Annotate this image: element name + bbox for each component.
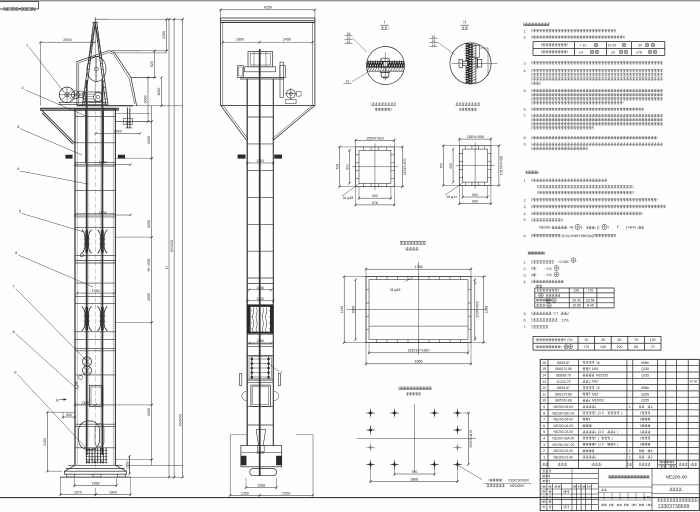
svg-text:10: 10 — [584, 338, 588, 342]
svg-text:: 0.6: : 0.6 — [545, 273, 552, 277]
svg-text:9.: 9. — [523, 143, 526, 147]
svg-text:2300: 2300 — [162, 31, 166, 39]
svg-text:45: 45 — [474, 281, 478, 285]
svg-text:724: 724 — [336, 164, 340, 170]
svg-text:18-φ18: 18-φ18 — [343, 196, 354, 200]
svg-text:6.: 6. — [523, 234, 526, 238]
svg-text:H+-3000: H+-3000 — [147, 258, 151, 271]
svg-text:1: 1 — [629, 455, 631, 459]
svg-text:NE200-03D-00: NE200-03D-00 — [552, 411, 574, 415]
svg-text:170: 170 — [583, 345, 589, 349]
svg-text:392X3=1176: 392X3=1176 — [469, 430, 473, 448]
svg-text:M16X55: M16X55 — [596, 373, 608, 377]
svg-text:45: 45 — [474, 336, 478, 340]
svg-text:10: 10 — [542, 399, 546, 403]
svg-text:2.: 2. — [523, 267, 526, 271]
svg-text:1: 1 — [543, 455, 545, 459]
svg-text:≥4: ≥4 — [579, 50, 583, 54]
svg-text:14: 14 — [542, 374, 546, 378]
svg-text:,: , — [577, 259, 578, 263]
svg-text:3.: 3. — [523, 273, 526, 277]
svg-text:138X4=556: 138X4=556 — [466, 135, 484, 139]
svg-text:NE200-05-00: NE200-05-00 — [553, 418, 573, 422]
svg-text:13: 13 — [346, 80, 350, 84]
svg-text:1188: 1188 — [484, 306, 488, 314]
svg-text:7: 7 — [543, 418, 545, 422]
svg-text:< 10: < 10 — [580, 43, 587, 47]
svg-text:(%): (%) — [567, 338, 572, 342]
svg-text:: 12%.: : 12%. — [560, 318, 570, 322]
svg-text:NE200-03-00: NE200-03-00 — [553, 430, 573, 434]
svg-text:13: 13 — [432, 43, 436, 47]
svg-text:NE200-06-00: NE200-06-00 — [553, 405, 573, 409]
svg-text:600: 600 — [346, 164, 350, 170]
svg-text:11: 11 — [542, 392, 546, 396]
svg-text:2.: 2. — [523, 198, 526, 202]
svg-text:676: 676 — [372, 201, 378, 205]
svg-text:1.: 1. — [523, 179, 526, 183]
svg-text:500: 500 — [66, 413, 72, 417]
svg-text:4.: 4. — [523, 280, 526, 284]
svg-text:10.56: 10.56 — [572, 303, 581, 307]
svg-text:(3.0: (3.0 — [598, 430, 604, 434]
svg-text:: 0.5: : 0.5 — [545, 267, 552, 271]
svg-text:1670: 1670 — [74, 490, 82, 494]
svg-text:10 20: 10 20 — [608, 43, 617, 47]
svg-text:1350: 1350 — [241, 491, 249, 495]
svg-text:2450: 2450 — [283, 38, 291, 42]
svg-text:9: 9 — [543, 405, 545, 409]
svg-text:3: 3 — [543, 443, 545, 447]
svg-text:500: 500 — [372, 194, 378, 198]
svg-text:2350: 2350 — [282, 491, 290, 495]
svg-text:NE200-01-00: NE200-01-00 — [553, 455, 573, 459]
svg-text:100: 100 — [617, 345, 623, 349]
svg-text:): ) — [621, 411, 622, 415]
svg-text:3.: 3. — [523, 205, 526, 209]
svg-text:3.: 3. — [523, 61, 526, 65]
svg-text:II: II — [463, 20, 465, 25]
svg-text:1: 1 — [629, 405, 631, 409]
svg-text:500: 500 — [125, 120, 131, 124]
svg-text:30: 30 — [638, 43, 642, 47]
svg-text:1800: 1800 — [109, 490, 117, 494]
svg-text:1650: 1650 — [157, 88, 161, 96]
svg-text:4.: 4. — [523, 212, 526, 216]
svg-text:GB6170-86: GB6170-86 — [555, 392, 572, 396]
svg-text:: 0.089: : 0.089 — [558, 260, 569, 264]
svg-text:1300: 1300 — [256, 159, 264, 163]
svg-text:16: 16 — [596, 386, 600, 390]
svg-text:1140: 1140 — [340, 306, 344, 314]
svg-text:100: 100 — [650, 338, 656, 342]
svg-text:NE200-: NE200- — [539, 226, 552, 230]
svg-text:3000: 3000 — [147, 408, 151, 416]
svg-text:50: 50 — [618, 338, 622, 342]
svg-text:65Mn: 65Mn — [641, 361, 649, 365]
svg-text:2: 2 — [543, 449, 545, 453]
svg-text:1750: 1750 — [92, 289, 100, 293]
svg-text:1156: 1156 — [257, 339, 264, 343]
svg-text:16-φ14: 16-φ14 — [446, 195, 457, 199]
svg-text:3000: 3000 — [147, 136, 151, 144]
svg-text:): ) — [617, 443, 618, 447]
svg-text:NE200-02-00: NE200-02-00 — [553, 449, 573, 453]
svg-text:183X10=1830: 183X10=1830 — [408, 349, 430, 353]
svg-text:GB93-87: GB93-87 — [557, 386, 570, 390]
svg-text:5.: 5. — [523, 89, 526, 93]
svg-text:1400: 1400 — [257, 451, 265, 455]
svg-text:1268: 1268 — [257, 483, 265, 487]
svg-text:)=4(4): )=4(4) — [626, 226, 636, 230]
svg-text:I: I — [384, 20, 385, 25]
svg-text:R736: R736 — [690, 380, 698, 384]
svg-text:H+5430: H+5430 — [179, 414, 183, 426]
svg-text:150X150X600: 150X150X600 — [508, 479, 529, 483]
svg-text:700: 700 — [411, 470, 417, 474]
svg-text:M16X50: M16X50 — [592, 399, 604, 403]
svg-text:1: 1 — [629, 449, 631, 453]
svg-text:1690: 1690 — [99, 161, 107, 165]
svg-text:1500: 1500 — [114, 130, 122, 134]
svg-text:6: 6 — [543, 424, 545, 428]
svg-text:12: 12 — [542, 386, 546, 390]
svg-text:1050: 1050 — [125, 461, 129, 469]
svg-text:1:40: 1:40 — [643, 495, 650, 499]
svg-text:2.: 2. — [523, 36, 526, 40]
svg-text:1868: 1868 — [410, 477, 418, 481]
svg-text:M16: M16 — [592, 392, 598, 396]
svg-text:/: / — [608, 226, 609, 230]
svg-text:920: 920 — [150, 61, 154, 67]
svg-text:4250: 4250 — [264, 6, 272, 10]
svg-text:NE200-03A-00: NE200-03A-00 — [552, 437, 574, 441]
svg-text:0.7: 0.7 — [554, 312, 559, 316]
svg-text:34-φ18: 34-φ18 — [390, 288, 401, 292]
svg-text:Q235: Q235 — [641, 367, 649, 371]
svg-text:750: 750 — [439, 163, 443, 169]
svg-text:3000: 3000 — [147, 293, 151, 301]
svg-text:16: 16 — [596, 361, 600, 365]
svg-text:(1.0: (1.0 — [598, 443, 604, 447]
svg-text:155X4=620: 155X4=620 — [366, 136, 384, 140]
svg-text:8.: 8. — [523, 136, 526, 140]
svg-text:4.: 4. — [523, 69, 526, 73]
svg-text:JC222-79: JC222-79 — [556, 380, 570, 384]
svg-text:≥78: ≥78 — [636, 50, 642, 54]
svg-text:NE200-06E3N: NE200-06E3N — [3, 5, 36, 11]
svg-text:8.45: 8.45 — [587, 303, 594, 307]
svg-text:1958: 1958 — [92, 481, 100, 485]
svg-text:M16: M16 — [592, 367, 598, 371]
svg-text:13: 13 — [542, 380, 546, 384]
svg-text:70: 70 — [651, 345, 655, 349]
svg-text:GB898-79: GB898-79 — [556, 374, 571, 378]
svg-text:8: 8 — [543, 411, 545, 415]
svg-text:3000: 3000 — [147, 220, 151, 228]
svg-text:7.: 7. — [523, 114, 526, 118]
svg-text:GB6170-86: GB6170-86 — [555, 367, 572, 371]
svg-text:H: H — [165, 266, 169, 269]
svg-text:M10: M10 — [592, 380, 598, 384]
svg-text:GB5782-86: GB5782-86 — [555, 399, 572, 403]
svg-text:29.43: 29.43 — [572, 298, 581, 302]
svg-text:2000: 2000 — [144, 96, 148, 104]
svg-text:1758: 1758 — [414, 265, 422, 269]
svg-text:85: 85 — [634, 345, 638, 349]
svg-text:(KJ/)=5460+580X(n): (KJ/)=5460+580X(n) — [562, 234, 594, 238]
svg-text:(1.0: (1.0 — [598, 411, 604, 415]
svg-text:13303738699: 13303738699 — [658, 504, 690, 510]
svg-text:Q235: Q235 — [641, 399, 649, 403]
svg-text:Q235: Q235 — [641, 374, 649, 378]
svg-text:15: 15 — [542, 367, 546, 371]
svg-text:): ) — [612, 436, 613, 440]
svg-text:1066: 1066 — [352, 306, 356, 314]
svg-text:≥5: ≥5 — [611, 50, 615, 54]
svg-text:NE200-03C-00: NE200-03C-00 — [552, 443, 574, 447]
svg-text:1888: 1888 — [99, 211, 107, 215]
svg-text:1156: 1156 — [257, 286, 264, 290]
svg-text:H+5430: H+5430 — [170, 240, 174, 252]
svg-text:600: 600 — [472, 200, 478, 204]
svg-text:135: 135 — [600, 345, 606, 349]
svg-text:): ) — [617, 430, 618, 434]
svg-text:65Mn: 65Mn — [641, 386, 649, 390]
svg-text:170X5=850: 170X5=850 — [476, 301, 480, 318]
svg-text:6.: 6. — [523, 319, 526, 323]
svg-text:1866: 1866 — [414, 360, 422, 364]
svg-text:NE200-04-00: NE200-04-00 — [553, 424, 573, 428]
svg-text:Q235: Q235 — [641, 392, 649, 396]
svg-text:2400: 2400 — [43, 438, 47, 446]
svg-text:5: 5 — [543, 430, 545, 434]
svg-text:GB93-87: GB93-87 — [557, 361, 570, 365]
svg-text:500: 500 — [472, 193, 478, 197]
svg-text:7.: 7. — [523, 325, 526, 329]
svg-text:2500: 2500 — [63, 38, 71, 42]
svg-text:15X45=670: 15X45=670 — [403, 158, 407, 175]
svg-text:5.: 5. — [523, 218, 526, 222]
svg-text:12: 12 — [347, 40, 351, 44]
svg-text:4: 4 — [543, 437, 545, 441]
svg-text:16: 16 — [542, 361, 546, 365]
svg-text:23.54: 23.54 — [586, 298, 595, 302]
svg-text:178.5X4=706: 178.5X4=706 — [500, 156, 504, 175]
svg-text:25: 25 — [601, 338, 605, 342]
svg-text:75: 75 — [634, 338, 638, 342]
svg-text:6.: 6. — [523, 108, 526, 112]
svg-text:170: 170 — [587, 289, 593, 293]
svg-text:1240: 1240 — [256, 297, 264, 301]
svg-text:1.: 1. — [523, 29, 526, 33]
svg-text:1800: 1800 — [236, 38, 244, 42]
svg-text:NE200-00: NE200-00 — [665, 474, 687, 480]
svg-text:220: 220 — [574, 289, 580, 293]
svg-text:M20X500: M20X500 — [510, 484, 524, 488]
svg-text:1.: 1. — [523, 260, 526, 264]
svg-text:1300: 1300 — [81, 401, 89, 405]
svg-text:650: 650 — [449, 163, 453, 169]
svg-text:5.: 5. — [523, 312, 526, 316]
